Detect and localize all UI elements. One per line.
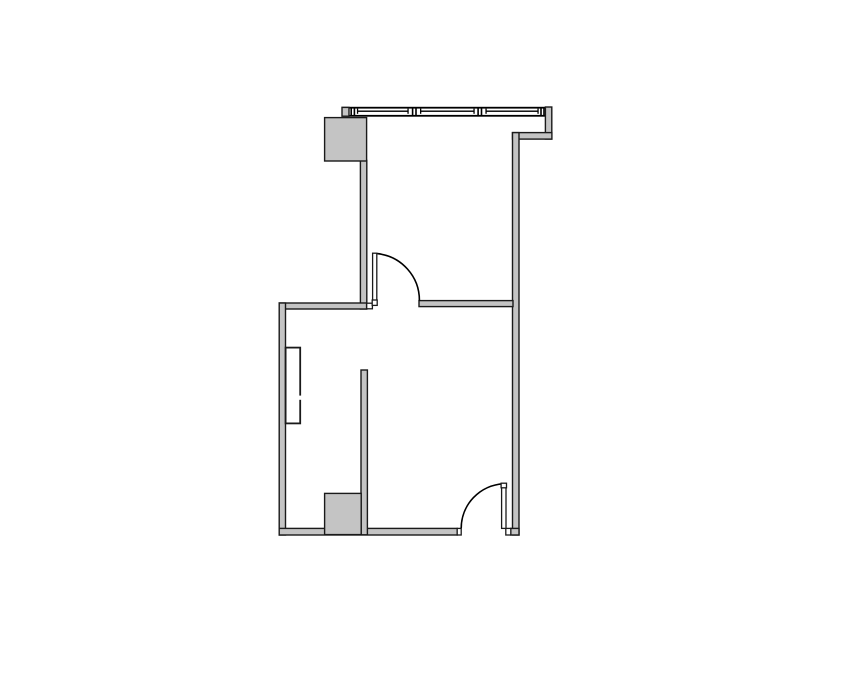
door-upper [367, 253, 420, 309]
floor-plan-page [0, 0, 855, 678]
glazing-segment [358, 111, 408, 112]
wall-bottom-right-corner [511, 528, 519, 535]
door-upper-swing-arc [377, 254, 419, 301]
floor-plan-drawing [0, 0, 855, 678]
door-lower-jamb-right [506, 528, 511, 535]
glazing-tick [485, 109, 486, 114]
column-lower-left [325, 493, 362, 534]
wall-middle-left [279, 303, 366, 309]
wall-right [513, 133, 520, 535]
glazing-tick [420, 109, 421, 114]
wall-recess-panel-gap [298, 396, 302, 400]
wall-recess-outline [286, 348, 301, 424]
glazing-segment [421, 111, 474, 112]
glazing-tick [537, 109, 538, 114]
door-upper-hinge-cap [372, 300, 377, 305]
glazing-tick [407, 109, 408, 114]
wall-bottom [279, 528, 457, 535]
window-wall-outer-line [342, 107, 547, 109]
wall-recess-left [286, 348, 303, 424]
mullion-bar [354, 108, 356, 115]
door-upper-jamb [367, 303, 373, 309]
door-lower-hinge-cap [501, 483, 506, 488]
glazing-tick [473, 109, 474, 114]
door-lower-swing-arc [461, 484, 503, 528]
mullion-bar [481, 108, 483, 115]
mullion-bar [540, 108, 542, 115]
door-lower-leaf [502, 487, 506, 528]
wall-left [279, 303, 285, 535]
window-wall-end-cap [342, 107, 349, 116]
door-upper-leaf [373, 253, 377, 300]
mullion-bar [350, 108, 352, 115]
glazing-tick [357, 109, 358, 114]
wall-middle-right [419, 301, 513, 307]
column-upper-left [325, 118, 367, 161]
mullion-bar [412, 108, 414, 115]
window-wall-inner-line [342, 115, 547, 117]
mullion-bar [415, 108, 417, 115]
mullion-bar [543, 108, 545, 115]
door-lower [457, 483, 511, 535]
wall-interior-lower [361, 370, 367, 535]
wall-interior-upper [360, 160, 366, 309]
mullion-bar [477, 108, 479, 115]
window-wall [342, 107, 547, 117]
glazing-segment [487, 111, 538, 112]
walls [279, 107, 552, 535]
door-lower-jamb-left [457, 528, 461, 535]
